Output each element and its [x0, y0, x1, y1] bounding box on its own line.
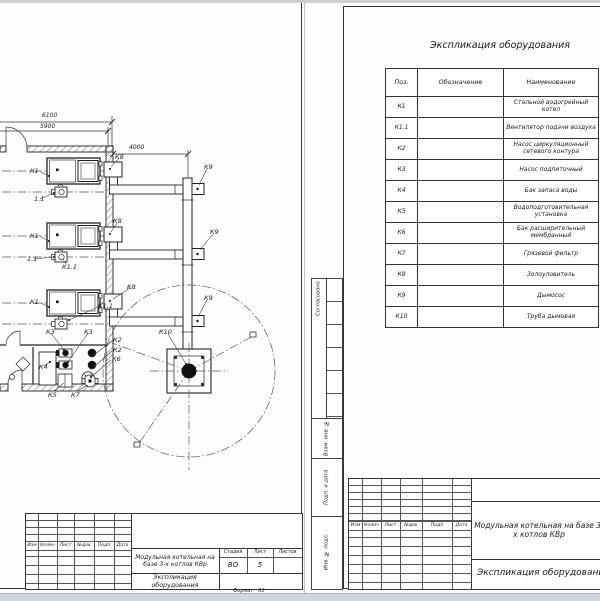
equipment-table: Поз. Обозначение Наименование К1 Стально… [385, 68, 599, 328]
right-title-block: Изм Колич Лист №док Подп Дата Модульная … [348, 478, 600, 590]
row-designation [418, 223, 504, 243]
row-designation [418, 202, 504, 222]
water-treatment-k5 [58, 374, 72, 387]
callout-k1-1: К1.1 [98, 303, 113, 310]
row-designation [418, 118, 504, 138]
paper-edge [304, 3, 305, 593]
row-pos: К9 [386, 286, 418, 306]
row-name: Бак запаса воды [504, 181, 598, 201]
callout-k7: К7 [71, 392, 80, 399]
project-name: Модульная котельная на базе 3-х котлов К… [473, 502, 600, 558]
row-pos: К1.1 [386, 118, 418, 138]
pump-k3-b [57, 361, 73, 369]
row-pos: К6 [386, 223, 418, 243]
row-designation [418, 181, 504, 201]
row-designation [418, 307, 504, 327]
callout-k8: К8 [115, 154, 124, 161]
right-sheet-frame-top [343, 6, 600, 7]
row-name: Стальной водогрейный котел [504, 97, 598, 117]
row-name: Дымосос [504, 286, 598, 306]
project-name: Модульная котельная на базе 3-х котлов К… [132, 549, 218, 573]
callout-k4: К4 [39, 364, 48, 371]
table-row: К1 Стальной водогрейный котел [386, 97, 598, 118]
margin-col-agreed: Согласовано [312, 279, 326, 418]
callout-k1-1: 1.1 [27, 256, 37, 263]
row-name: Грязевой фильтр [504, 244, 598, 264]
callout-k2: К2 [113, 347, 122, 354]
revision-header-row: Изм Колич Лист №док Подп Дата [26, 541, 131, 549]
revision-header-row: Изм Колич Лист №док Подп Дата [349, 521, 471, 529]
row-name: Бак расширительный мембранный [504, 223, 598, 243]
table-row: К9 Дымосос [386, 286, 598, 307]
row-name: Насос подпиточный [504, 160, 598, 180]
row-designation [418, 286, 504, 306]
callout-k1-1: 1.1 [34, 196, 44, 203]
row-designation [418, 97, 504, 117]
margin-col-inv-orig: Инв. № подл. [312, 517, 342, 587]
table-row: К6 Бак расширительный мембранный [386, 223, 598, 244]
boiler-house-plan [0, 0, 301, 513]
sheet-header: Лист [247, 548, 273, 557]
stage-value: ВО [219, 557, 247, 573]
callout-k9: К9 [210, 229, 219, 236]
callout-k9: К9 [204, 164, 213, 171]
dim-overall: 6100 [42, 113, 57, 119]
equipment-list-title: Экспликация оборудования [400, 40, 600, 51]
margin-col-sign-date: Подп. и дата [312, 459, 342, 516]
row-name: Золоуловитель [504, 265, 598, 285]
row-name: Вентилятор подачи воздуха [504, 118, 598, 138]
margin-attestation-column: Согласовано Взам. инв. № Подп. и дата Ин… [311, 278, 343, 590]
row-pos: К10 [386, 307, 418, 327]
drain-circle [10, 375, 15, 380]
row-pos: К7 [386, 244, 418, 264]
row-designation [418, 265, 504, 285]
callout-k10: К10 [159, 329, 172, 336]
equipment-table-header: Поз. Обозначение Наименование [386, 69, 598, 97]
dim-inner: 5900 [40, 124, 55, 130]
doc-title: Экспликация оборудования [473, 560, 600, 588]
callout-k8: К8 [127, 284, 136, 291]
floor-drain [16, 357, 30, 371]
table-row: К2 Насос циркуляционный сетевого контура [386, 139, 598, 160]
callout-k3: К3 [46, 329, 55, 336]
margin-col-replace-inv: Взам. инв. № [312, 419, 342, 458]
drawing-viewer: { "left_sheet": { "dims": { "overall": "… [0, 0, 600, 600]
callout-k5: К5 [48, 392, 57, 399]
format-note: Формат А3 [233, 589, 265, 594]
row-name: Водоподготовительная установка [504, 202, 598, 222]
row-pos: К4 [386, 181, 418, 201]
row-pos: К3 [386, 160, 418, 180]
row-designation [418, 160, 504, 180]
row-designation [418, 139, 504, 159]
left-sheet-frame-right [301, 3, 302, 588]
table-row: К4 Бак запаса воды [386, 181, 598, 202]
table-row: К1.1 Вентилятор подачи воздуха [386, 118, 598, 139]
left-title-block: Изм Колич Лист №док Подп Дата Модульная … [25, 513, 303, 590]
pump-room-equipment [10, 349, 99, 387]
callout-k3: К3 [84, 329, 93, 336]
table-row: К10 Труба дымовая [386, 307, 598, 327]
sheet-number: 5 [247, 557, 273, 573]
equipment-table-rows: К1 Стальной водогрейный котел К1.1 Венти… [386, 97, 598, 327]
row-name: Насос циркуляционный сетевого контура [504, 139, 598, 159]
doc-title: Экспликация оборудования [132, 574, 218, 589]
flue-collector [182, 178, 194, 364]
callout-k2: К2 [113, 337, 122, 344]
callout-k1: К1 [30, 233, 39, 240]
row-pos: К1 [386, 97, 418, 117]
callout-k9: К9 [204, 295, 213, 302]
boiler-row-1 [47, 158, 204, 197]
callout-k6: К6 [112, 356, 121, 363]
boiler-row-2 [47, 223, 204, 262]
sheets-header: Листов [273, 548, 302, 557]
callout-k1: К1 [30, 299, 39, 306]
stage-header: Стадия [219, 548, 247, 557]
callout-k1: К1 [30, 168, 39, 175]
row-pos: К5 [386, 202, 418, 222]
row-designation [418, 244, 504, 264]
table-row: К8 Золоуловитель [386, 265, 598, 286]
right-sheet-frame-left [343, 6, 344, 588]
callout-k1-1: К1.1 [62, 264, 77, 271]
row-name: Труба дымовая [504, 307, 598, 327]
dim-flue: 4000 [129, 145, 144, 151]
boiler-row-3 [47, 290, 204, 329]
table-row: К7 Грязевой фильтр [386, 244, 598, 265]
row-pos: К2 [386, 139, 418, 159]
table-row: К5 Водоподготовительная установка [386, 202, 598, 223]
table-row: К3 Насос подпиточный [386, 160, 598, 181]
callout-k8: К8 [113, 218, 122, 225]
row-pos: К8 [386, 265, 418, 285]
